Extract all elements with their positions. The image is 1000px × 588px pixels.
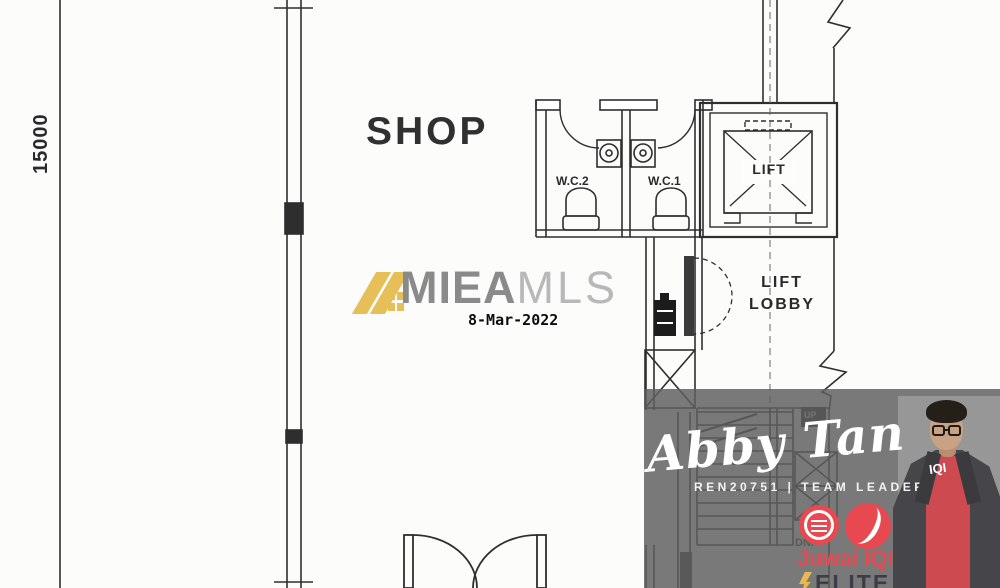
core-walls xyxy=(763,0,777,410)
watermark-brand-light: MLS xyxy=(517,262,619,313)
glasses-icon xyxy=(932,425,963,437)
watermark-brand-bold: MIEA xyxy=(400,262,517,313)
service-shafts xyxy=(645,237,732,410)
agent-credentials: REN20751 | TEAM LEADER xyxy=(694,480,926,494)
room-label-shop: SHOP xyxy=(366,110,489,154)
room-label-lift: LIFT xyxy=(740,161,798,177)
dimension-label: 15000 xyxy=(30,116,52,174)
juwai-coin-logo-icon xyxy=(799,505,839,545)
lift-lobby-line2: LOBBY xyxy=(749,296,815,313)
entrance-double-door xyxy=(404,535,546,588)
date-stamp: 8-Mar-2022 xyxy=(468,311,558,329)
floor-plan-image: 15000 SHOP W.C.2 W.C.1 LIFT LIFT LOBBY U… xyxy=(0,0,1000,588)
room-label-wc1: W.C.1 xyxy=(648,174,681,188)
wc-block xyxy=(536,100,712,237)
toilet-wc2 xyxy=(563,188,599,230)
watermark-brand: MIEAMLS xyxy=(400,264,618,312)
elite-label: ELITE xyxy=(815,572,890,588)
agent-shirt-text: IQI xyxy=(928,460,947,477)
juwai-iqi-label: Juwai IQI xyxy=(797,546,894,572)
toilet-wc1 xyxy=(653,188,689,230)
sink-wc1 xyxy=(631,140,655,167)
lightning-icon xyxy=(799,572,812,588)
agent-hair xyxy=(926,400,967,423)
iqi-globe-logo-icon xyxy=(845,503,891,549)
shop-walls xyxy=(274,0,313,588)
room-label-lift-lobby: LIFT LOBBY xyxy=(738,272,826,316)
sink-wc2 xyxy=(597,140,621,167)
lift-lobby-line1: LIFT xyxy=(761,274,803,291)
room-label-wc2: W.C.2 xyxy=(556,174,589,188)
elite-badge: ELITE xyxy=(799,572,890,588)
